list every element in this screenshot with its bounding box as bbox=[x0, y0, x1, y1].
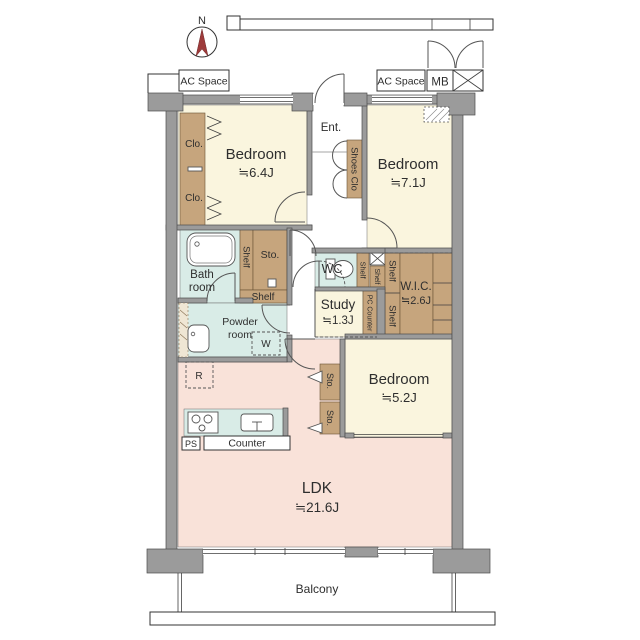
shoes-closet-label: Shoes Clo bbox=[349, 147, 360, 191]
meter-box-label: MB bbox=[431, 77, 449, 89]
study-size: ≒1.3J bbox=[322, 315, 353, 327]
ac-space-right-label: AC Space bbox=[377, 76, 424, 88]
pillar-bottom-left bbox=[147, 549, 203, 573]
wall-pc-wic bbox=[377, 289, 385, 337]
bath-label-line2: room bbox=[189, 282, 215, 294]
wic-shelf-upper-label: Shelf bbox=[387, 260, 398, 282]
closet-lower-label: Clo. bbox=[185, 193, 203, 204]
refrigerator-label: R bbox=[195, 371, 202, 382]
pipe-space-label: PS bbox=[185, 439, 197, 449]
study-label: Study bbox=[321, 297, 356, 312]
wall-hall-bedroomne bbox=[362, 105, 367, 220]
pillar-top-mid-left bbox=[292, 93, 313, 111]
wic-shelf-lower-label: Shelf bbox=[387, 305, 398, 327]
balcony-slab bbox=[150, 612, 495, 625]
wall-powder-ldk bbox=[178, 357, 287, 362]
bedroomse-slide-stub-left bbox=[345, 433, 354, 438]
balcony-label: Balcony bbox=[296, 582, 339, 596]
bedroom-se-size: ≒5.2J bbox=[381, 390, 416, 405]
powder-room-label-line2: room bbox=[228, 329, 252, 341]
wc-label: WC bbox=[322, 262, 343, 276]
hall-storage-label: Sto. bbox=[261, 249, 280, 261]
kitchen-sink bbox=[241, 414, 273, 431]
wc-shelf-side-label: Shelf bbox=[359, 261, 368, 279]
wall-wc-bottom bbox=[315, 287, 385, 291]
bedroom-se-floor bbox=[345, 339, 452, 437]
shoes-closet-doors bbox=[333, 141, 348, 198]
wc-shelf-small-label: Shelf bbox=[373, 269, 380, 285]
floor-plan-canvas: N AC Space AC Space MB Clo. Clo. Bedroom… bbox=[0, 0, 640, 640]
corridor-left-ledge bbox=[148, 74, 181, 93]
hall-storage-box bbox=[268, 279, 276, 287]
entrance-door-gap bbox=[313, 94, 344, 105]
ldk-size: ≒21.6J bbox=[295, 500, 339, 515]
entrance-label: Ent. bbox=[321, 122, 341, 134]
north-compass bbox=[187, 27, 217, 57]
bedroom-se-label: Bedroom bbox=[369, 371, 430, 388]
counter-label: Counter bbox=[228, 438, 266, 450]
wall-bath-powder-right bbox=[235, 298, 253, 303]
wall-top-entrance-right bbox=[344, 93, 367, 106]
pillar-top-left bbox=[148, 93, 183, 111]
balcony-structure bbox=[150, 573, 495, 625]
wall-bedroomnw-hall bbox=[307, 105, 312, 195]
corridor-outline bbox=[227, 16, 493, 30]
wall-bedroomse-left bbox=[340, 339, 345, 437]
bathtub bbox=[187, 233, 235, 266]
bath-label-line1: Bath bbox=[190, 269, 214, 281]
kitchen-stove bbox=[188, 412, 218, 433]
bath-shelf-bottom-label: Shelf bbox=[252, 292, 275, 303]
bedroom-nw-size: ≒6.4J bbox=[238, 165, 273, 180]
ldk-label: LDK bbox=[302, 480, 333, 497]
north-label: N bbox=[198, 15, 206, 27]
wall-wc-top bbox=[312, 248, 385, 253]
bedroom-ne-label: Bedroom bbox=[378, 156, 439, 173]
bedroom-nw-label: Bedroom bbox=[226, 146, 287, 163]
closet-divider bbox=[188, 167, 202, 171]
pipe-shaft-box bbox=[453, 70, 483, 91]
wic-label: W.I.C. bbox=[400, 281, 431, 293]
window-top-bedroom-nw bbox=[240, 96, 293, 104]
window-balcony-left bbox=[203, 548, 345, 555]
ac-space-left-label: AC Space bbox=[180, 76, 227, 88]
outer-wall-left bbox=[166, 95, 177, 552]
bedroomne-corner-duct bbox=[424, 107, 449, 122]
washer-label: W bbox=[261, 339, 271, 350]
ldk-storage-lower-label: Sto. bbox=[325, 410, 335, 426]
meter-box-doors bbox=[428, 41, 483, 68]
window-top-bedroom-ne bbox=[372, 96, 432, 104]
outer-wall-right bbox=[452, 95, 463, 552]
ldk-storage-upper-label: Sto. bbox=[325, 373, 335, 389]
wall-bottom-mid bbox=[345, 547, 378, 557]
wall-bedroomse-top bbox=[345, 334, 452, 339]
bedroomse-slide-stub-right bbox=[443, 433, 452, 438]
powder-room-label-line1: Powder bbox=[222, 316, 258, 328]
floor-plan: N AC Space AC Space MB Clo. Clo. Bedroom… bbox=[0, 0, 640, 640]
window-balcony-right bbox=[378, 548, 433, 555]
wic-size: ≒2.6J bbox=[401, 295, 431, 307]
wall-bath-powder-left bbox=[178, 298, 207, 303]
closet-upper-label: Clo. bbox=[185, 139, 203, 150]
pillar-bottom-right bbox=[433, 549, 490, 573]
bedroom-ne-size: ≒7.1J bbox=[390, 175, 425, 190]
bath-shelf-side-label: Shelf bbox=[241, 246, 252, 268]
pc-counter-label: PC Counter bbox=[366, 295, 373, 332]
wic-right-shelves bbox=[433, 253, 452, 337]
